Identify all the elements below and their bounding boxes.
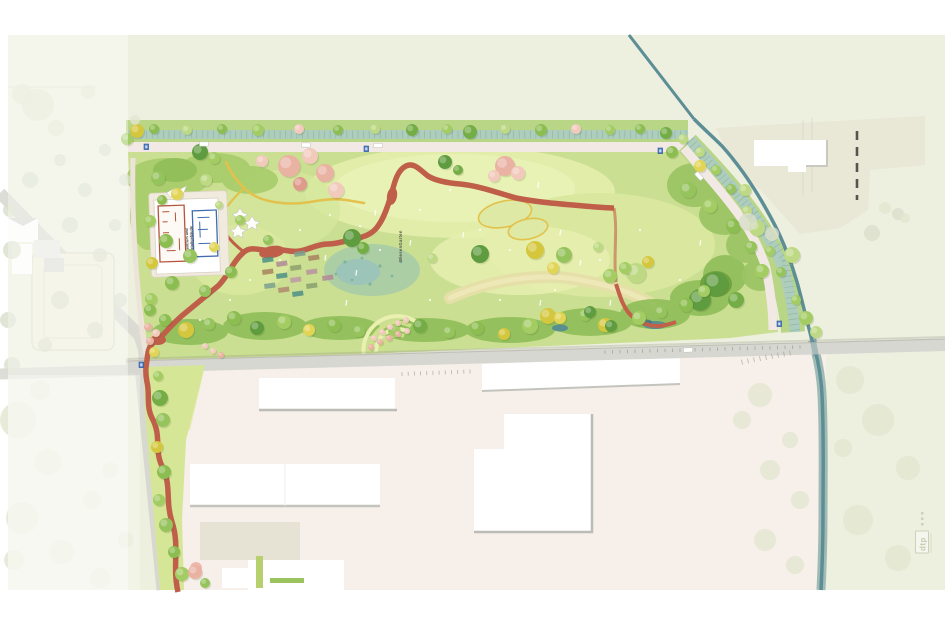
- tree-highlight: [800, 312, 807, 319]
- tree-icon: [834, 439, 852, 457]
- tree-highlight: [318, 166, 327, 175]
- tree-highlight: [454, 166, 459, 171]
- courtyard-building: [222, 568, 248, 588]
- building-wing-red: [158, 205, 186, 262]
- tree-highlight: [169, 547, 175, 553]
- bus-stop-icon: [777, 321, 782, 327]
- car-body: [200, 142, 209, 146]
- hall: [259, 378, 395, 410]
- tree-highlight: [464, 126, 471, 133]
- tree-highlight: [145, 324, 149, 328]
- car-icon: [374, 143, 383, 147]
- tree-highlight: [387, 336, 390, 339]
- tree-highlight: [304, 150, 312, 158]
- tree-highlight: [176, 568, 183, 575]
- tree-highlight: [405, 329, 408, 332]
- bus-stop-icon: [364, 146, 369, 152]
- tree-highlight: [204, 319, 210, 325]
- tree-highlight: [777, 268, 782, 273]
- person-dot: [229, 299, 231, 301]
- tree-highlight: [680, 299, 687, 306]
- tree-highlight: [443, 125, 448, 130]
- tree-highlight: [226, 267, 232, 273]
- tree-highlight: [371, 125, 376, 130]
- car-icon: [302, 143, 311, 147]
- tree-highlight: [203, 344, 206, 347]
- tree-highlight: [184, 250, 191, 257]
- tree-highlight: [727, 185, 732, 190]
- garden-area-label: WiesenGarten: [398, 230, 403, 262]
- tree-icon: [786, 556, 804, 574]
- person-dot: [479, 229, 481, 231]
- tree-highlight: [682, 184, 690, 192]
- tree-highlight: [473, 247, 482, 256]
- tree-highlight: [471, 322, 478, 329]
- person-dot: [429, 299, 431, 301]
- tree-highlight: [172, 189, 178, 195]
- tree-highlight: [334, 126, 339, 131]
- bus-stop-icon: [144, 144, 149, 150]
- tree-highlight: [152, 442, 158, 448]
- tree-icon: [765, 227, 779, 241]
- wetland-water: [336, 259, 380, 285]
- tree-highlight: [444, 327, 450, 333]
- person-dot: [249, 279, 251, 281]
- tree-highlight: [330, 184, 338, 192]
- tree-highlight: [280, 157, 291, 168]
- tree-highlight: [396, 321, 399, 324]
- tree-icon: [896, 456, 920, 480]
- tree-highlight: [743, 207, 748, 212]
- tree-highlight: [294, 178, 301, 185]
- tree-highlight: [656, 307, 662, 313]
- person-dot: [359, 225, 361, 227]
- logo-text: dtp: [919, 537, 928, 551]
- tree-highlight: [236, 216, 241, 221]
- tree-icon: [760, 460, 780, 480]
- tree-highlight: [746, 242, 752, 248]
- car-body: [374, 143, 383, 147]
- tree-highlight: [251, 322, 258, 329]
- tree-highlight: [396, 332, 399, 335]
- tree-highlight: [727, 220, 734, 227]
- tree-highlight: [542, 310, 550, 318]
- logo-dot: [921, 512, 924, 515]
- tree-icon: [782, 432, 798, 448]
- tree-highlight: [696, 148, 701, 153]
- person-dot: [499, 299, 501, 301]
- car-body: [302, 143, 311, 147]
- car-icon: [200, 142, 209, 146]
- tree-highlight: [154, 392, 162, 400]
- tree-highlight: [145, 216, 151, 222]
- tree-highlight: [150, 125, 155, 130]
- tree-highlight: [594, 243, 599, 248]
- logo-byline: [931, 533, 932, 553]
- tree-highlight: [667, 147, 673, 153]
- bus-stop-glyph: [145, 145, 147, 148]
- tree-highlight: [524, 320, 532, 328]
- tree-icon: [843, 505, 873, 535]
- site-plan-canvas: Infozentrum und Werkstattgebäude WiesenG…: [0, 0, 945, 630]
- car-body: [683, 348, 692, 353]
- tree-highlight: [180, 324, 188, 332]
- courtyard-green: [256, 556, 263, 588]
- tree-highlight: [166, 277, 173, 284]
- tree-highlight: [219, 353, 222, 356]
- tree-icon: [862, 404, 894, 436]
- tree-highlight: [278, 316, 285, 323]
- tree-highlight: [380, 330, 383, 333]
- site-plan: Infozentrum und Werkstattgebäude WiesenG…: [0, 0, 945, 630]
- tree-highlight: [501, 125, 506, 130]
- tree-icon: [864, 225, 880, 241]
- tree-highlight: [704, 200, 711, 207]
- tree-highlight: [147, 338, 151, 342]
- person-dot: [509, 249, 511, 251]
- tree-highlight: [145, 305, 151, 311]
- tree-highlight: [633, 312, 640, 319]
- tree-highlight: [606, 126, 611, 131]
- tree-highlight: [304, 325, 310, 331]
- tree-icon: [885, 545, 911, 571]
- tree-highlight: [536, 125, 542, 131]
- tree-highlight: [606, 321, 612, 327]
- tree-highlight: [158, 466, 165, 473]
- tree-highlight: [211, 349, 214, 352]
- tree-highlight: [740, 185, 746, 191]
- tree-highlight: [257, 156, 263, 162]
- tree-highlight: [160, 235, 167, 242]
- tree-highlight: [201, 579, 206, 584]
- tree-highlight: [712, 166, 717, 171]
- tree-highlight: [152, 172, 159, 179]
- pond: [552, 325, 568, 332]
- person-dot: [299, 229, 301, 231]
- tree-highlight: [369, 345, 372, 348]
- person-dot: [279, 259, 281, 261]
- context-fade: [8, 375, 140, 590]
- person-dot: [419, 209, 421, 211]
- person-dot: [679, 279, 681, 281]
- tree-icon: [754, 529, 776, 551]
- tree-highlight: [328, 319, 335, 326]
- tree-highlight: [372, 336, 375, 339]
- tree-highlight: [811, 327, 817, 333]
- tree-highlight: [786, 249, 794, 257]
- tree-highlight: [228, 312, 235, 319]
- tree-icon: [879, 202, 891, 214]
- tree-highlight: [414, 320, 421, 327]
- tree-highlight: [699, 286, 705, 292]
- tree-highlight: [147, 258, 153, 264]
- tree-highlight: [160, 519, 167, 526]
- tree-highlight: [354, 326, 360, 332]
- tree-highlight: [756, 265, 763, 272]
- tree-highlight: [154, 372, 159, 377]
- tree-highlight: [194, 146, 202, 154]
- tree-highlight: [499, 329, 505, 335]
- tree-highlight: [679, 135, 684, 140]
- tree-highlight: [253, 125, 259, 131]
- person-dot: [599, 259, 601, 261]
- bus-stop-glyph: [365, 147, 367, 150]
- tree-icon: [733, 411, 751, 429]
- tree-highlight: [201, 175, 207, 181]
- car-icon: [683, 348, 692, 353]
- tree-highlight: [706, 274, 718, 286]
- courtyard: [200, 522, 300, 560]
- tree-highlight: [218, 125, 223, 130]
- tree-highlight: [146, 294, 152, 300]
- tree-highlight: [528, 243, 537, 252]
- tree-highlight: [489, 171, 495, 177]
- bus-stop-glyph: [778, 322, 780, 325]
- tree-highlight: [512, 167, 519, 174]
- tree-highlight: [585, 307, 591, 313]
- person-dot: [639, 229, 641, 231]
- tree-highlight: [131, 125, 138, 132]
- tree-highlight: [153, 330, 157, 334]
- person-dot: [329, 214, 331, 216]
- tree-highlight: [210, 243, 215, 248]
- person-dot: [449, 189, 451, 191]
- person-dot: [379, 249, 381, 251]
- bus-stop-icon: [658, 148, 663, 154]
- tree-highlight: [154, 495, 160, 501]
- tree-highlight: [604, 270, 611, 277]
- tree-highlight: [555, 313, 561, 319]
- tree-icon: [791, 491, 809, 509]
- tree-highlight: [643, 257, 649, 263]
- tree-highlight: [160, 315, 166, 321]
- tree-icon: [130, 115, 140, 125]
- tree-highlight: [428, 254, 433, 259]
- bus-stop-glyph: [659, 149, 661, 152]
- logo-dot: [921, 518, 924, 521]
- tree-highlight: [661, 128, 667, 134]
- tree-highlight: [358, 243, 364, 249]
- tree-highlight: [189, 566, 196, 573]
- tree-highlight: [264, 236, 269, 241]
- tree-highlight: [695, 161, 701, 167]
- tree-highlight: [157, 414, 164, 421]
- courtyard-green: [270, 578, 304, 583]
- tree-highlight: [388, 325, 391, 328]
- tree-highlight: [548, 263, 554, 269]
- tree-highlight: [730, 294, 738, 302]
- tree-highlight: [158, 196, 163, 201]
- tree-icon: [836, 366, 864, 394]
- tree-highlight: [216, 202, 220, 206]
- bus-stop-glyph: [140, 363, 142, 366]
- tree-highlight: [620, 263, 626, 269]
- tree-highlight: [766, 247, 771, 252]
- tree-highlight: [378, 340, 381, 343]
- tree-icon: [900, 213, 910, 223]
- tree-highlight: [497, 158, 507, 168]
- tree-highlight: [792, 296, 797, 301]
- bus-stop-icon: [139, 362, 144, 368]
- tree-highlight: [209, 153, 215, 159]
- tree-highlight: [295, 125, 300, 130]
- person-dot: [199, 319, 201, 321]
- tree-icon: [748, 383, 772, 407]
- tree-highlight: [558, 249, 566, 257]
- tree-icon: [739, 213, 757, 231]
- tree-highlight: [407, 125, 413, 131]
- tree-highlight: [439, 156, 446, 163]
- tree-highlight: [183, 126, 188, 131]
- logo-dot: [921, 523, 924, 526]
- tree-highlight: [636, 125, 641, 130]
- tree-highlight: [572, 125, 577, 130]
- tree-highlight: [150, 348, 155, 353]
- tree-highlight: [200, 286, 206, 292]
- tree-highlight: [404, 318, 407, 321]
- person-dot: [554, 289, 556, 291]
- tree-highlight: [345, 231, 354, 240]
